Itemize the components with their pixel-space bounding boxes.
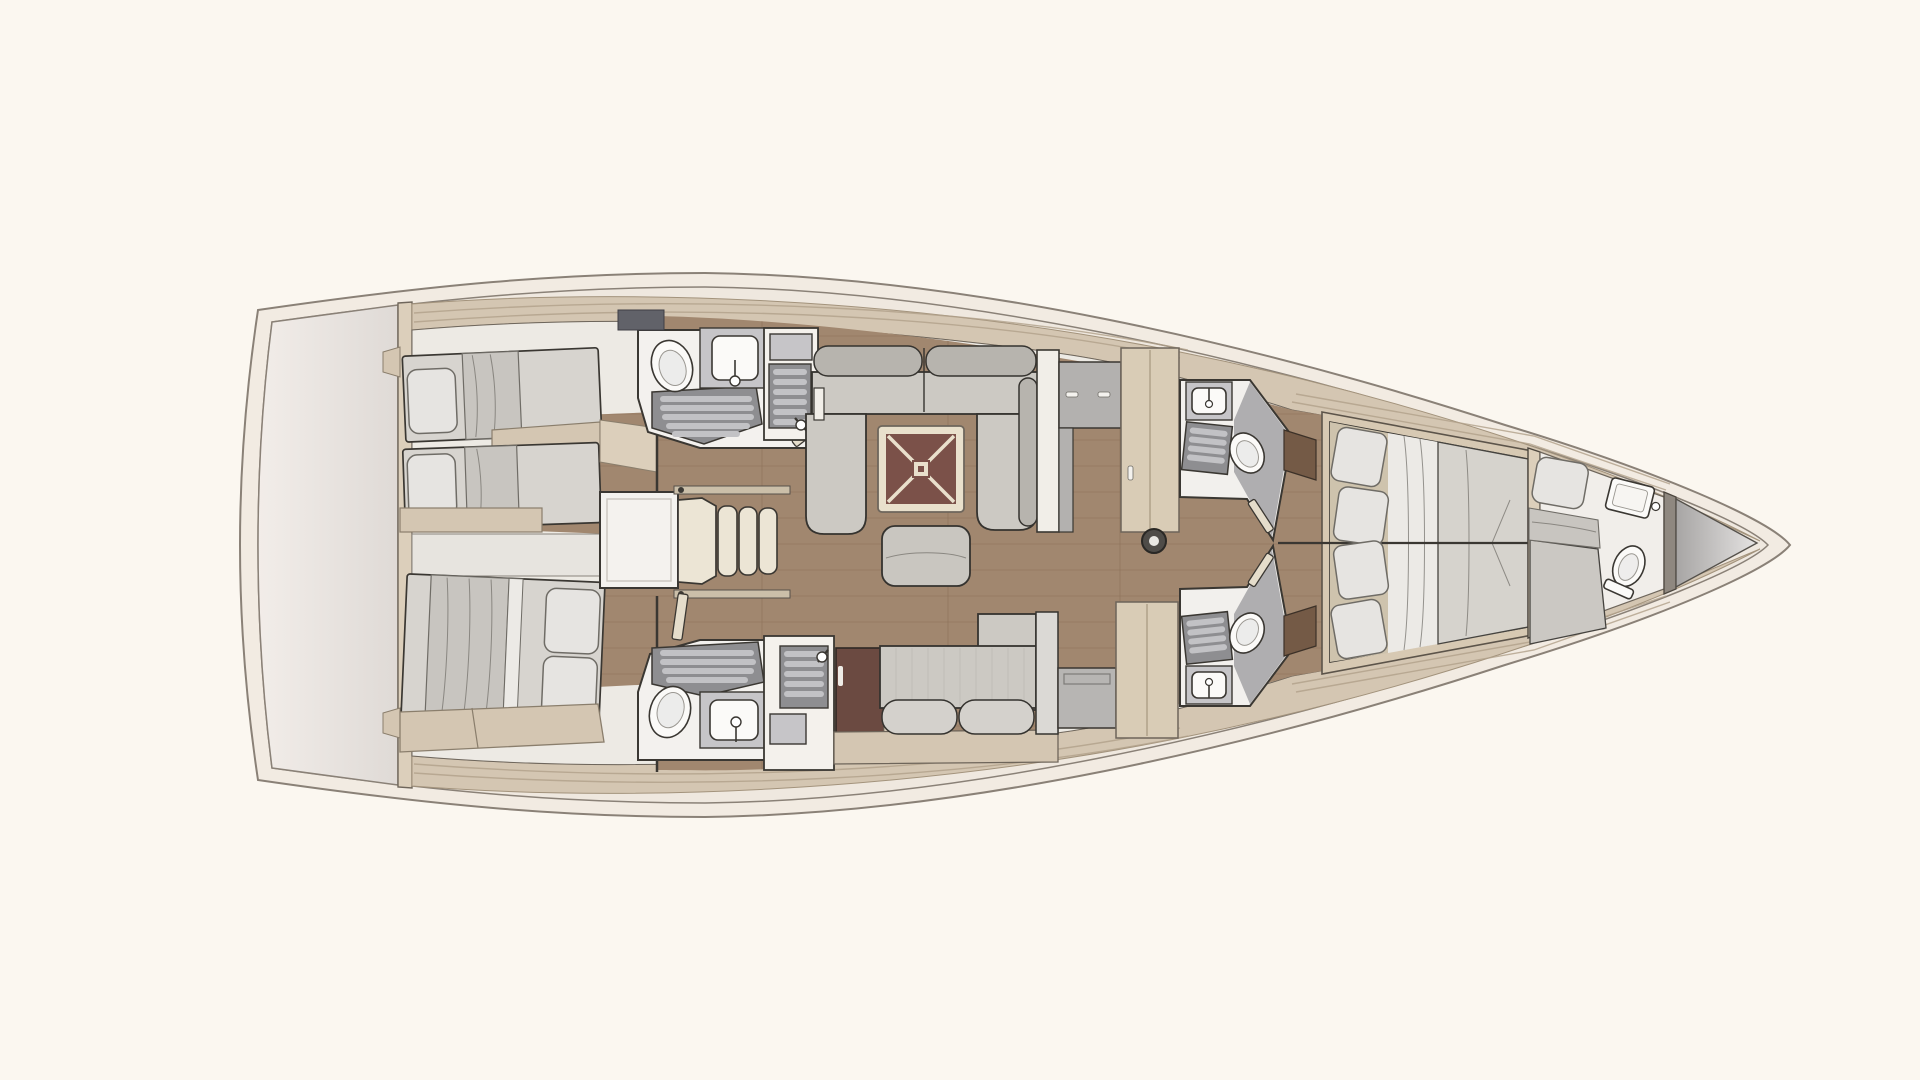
mast-post: [1142, 529, 1166, 553]
pillow-4: [1330, 598, 1389, 660]
companionway-step-wide: [678, 498, 716, 584]
sofa-end-cap: [814, 388, 824, 420]
sofa-bolster-2: [926, 346, 1036, 376]
settee-bolster-1: [882, 700, 957, 734]
page: [0, 0, 1920, 1080]
pillow-1: [1330, 426, 1389, 488]
pillow-3: [1332, 540, 1389, 600]
sofa-side-bolster: [1019, 378, 1037, 526]
companionway-wall-bottom: [674, 590, 790, 598]
sofa-back: [812, 372, 1038, 414]
companionway-wall-top: [674, 486, 790, 494]
transom-step-port: [383, 347, 400, 377]
settee-armrest: [1036, 612, 1058, 734]
transom-step-starboard: [383, 708, 400, 738]
berth-base-shelf: [400, 508, 542, 532]
head-shelf-dark: [618, 310, 664, 330]
shower-starboard-fwd: [1182, 612, 1233, 665]
sink-starboard-fwd: [1186, 666, 1232, 704]
stern-platform: [258, 305, 398, 785]
companionway-step-1: [718, 506, 737, 576]
shower-port-fwd: [1182, 422, 1233, 475]
faucet-icon: [730, 376, 740, 386]
alcove-side-cabinet: [1059, 428, 1073, 532]
settee-bolster-2: [959, 700, 1034, 734]
companionway-step-3: [759, 508, 777, 574]
aft-cabin-starboard: [400, 574, 605, 752]
sofa-bolster-1: [814, 346, 922, 376]
forepeak-bulkhead: [1664, 492, 1676, 594]
sink-port-aft: [700, 328, 770, 388]
boat-floor-plan: [0, 0, 1920, 1080]
salon-ottoman: [882, 526, 970, 586]
bow-berth-mattress: [1530, 540, 1606, 644]
faucet-icon: [731, 717, 741, 727]
companionway-step-2: [739, 507, 757, 575]
alcove-end-panel: [1037, 350, 1059, 532]
sink-starboard-aft: [700, 692, 772, 748]
settee-seat: [880, 646, 1036, 708]
maroon-locker: [836, 648, 884, 734]
sofa-chaise-left: [806, 414, 866, 534]
settee-base: [834, 730, 1058, 764]
bench-locker: [1058, 668, 1116, 728]
companionway-landing: [600, 492, 678, 588]
pillow-2: [1332, 486, 1389, 546]
sink-port-fwd: [1186, 382, 1232, 420]
bow-pillow: [1531, 456, 1590, 510]
salon-table: [878, 426, 964, 512]
